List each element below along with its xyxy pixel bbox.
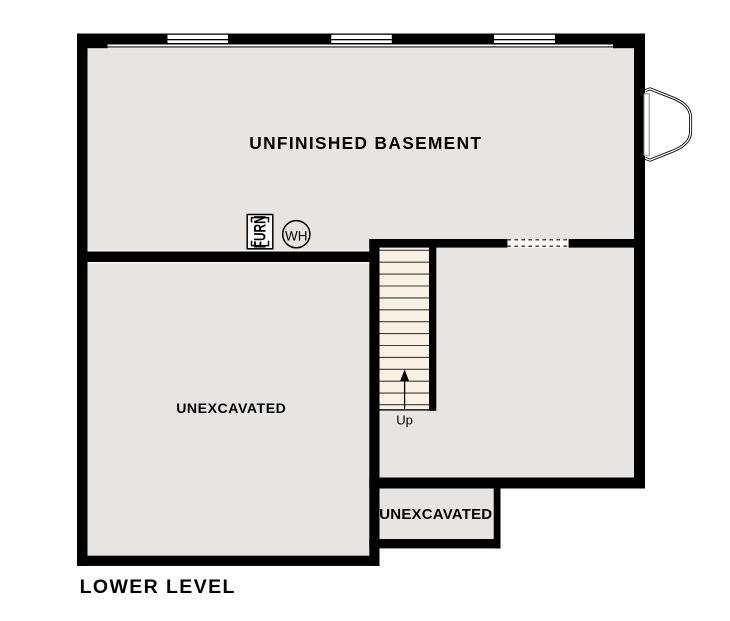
svg-text:FURN: FURN bbox=[251, 215, 270, 248]
svg-text:UNFINISHED BASEMENT: UNFINISHED BASEMENT bbox=[249, 133, 482, 153]
svg-text:WH: WH bbox=[285, 228, 308, 243]
svg-text:UNEXCAVATED: UNEXCAVATED bbox=[379, 506, 492, 523]
svg-text:Up: Up bbox=[396, 412, 413, 427]
svg-text:UNEXCAVATED: UNEXCAVATED bbox=[176, 400, 286, 416]
svg-text:LOWER LEVEL: LOWER LEVEL bbox=[80, 576, 236, 598]
